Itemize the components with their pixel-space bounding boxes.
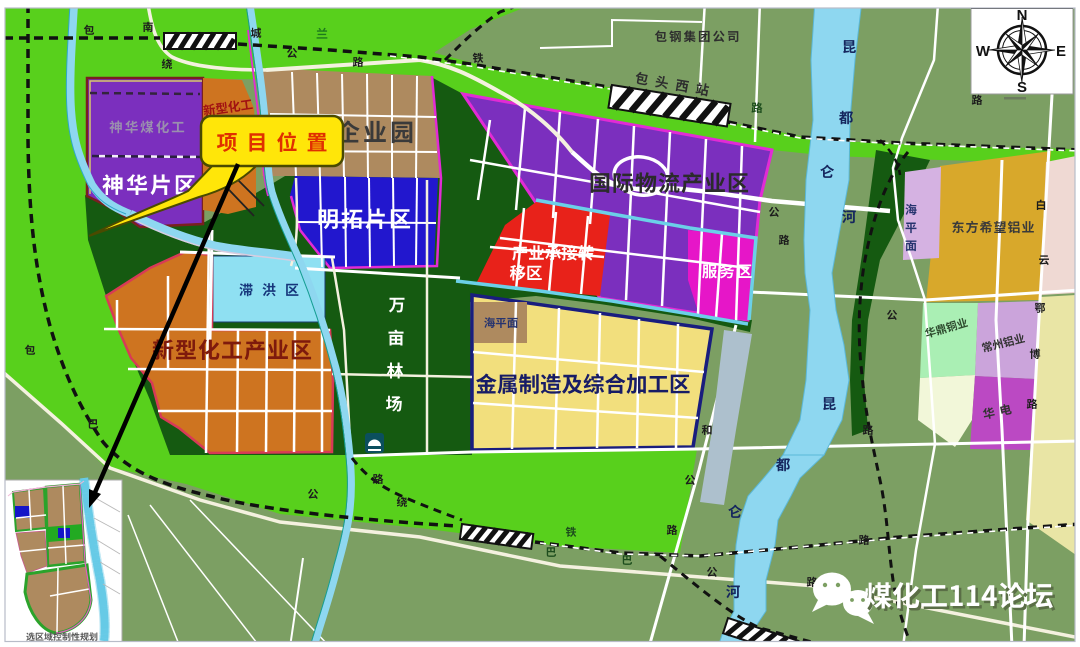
svg-text:S: S [1017, 79, 1027, 96]
svg-text:E: E [1056, 43, 1066, 60]
svg-text:W: W [976, 43, 991, 60]
svg-text:N: N [1017, 7, 1028, 24]
